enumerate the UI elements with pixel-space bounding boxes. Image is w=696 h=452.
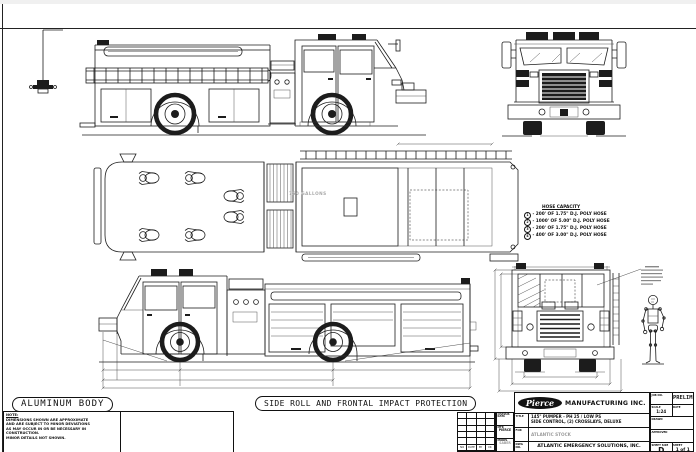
sheet-value: 1 of 1	[673, 447, 693, 452]
title-label: TITLE	[515, 414, 529, 427]
sheet-number-cell: SHEET 1 of 1	[673, 443, 694, 451]
rear-view-note-text	[641, 266, 665, 288]
model-value: SABER	[498, 442, 513, 446]
sheet-size-value: D	[652, 447, 672, 452]
note-box-empty-cell	[121, 412, 233, 452]
pierce-logo-text: Pierce	[526, 398, 554, 408]
rev-col-no: NO	[458, 445, 467, 451]
side-view-bottom-drawing	[95, 262, 485, 394]
chassis-data-header-cell: CHASSIS DATA	[497, 413, 513, 426]
drawing-title: 145" PUMPER - PH 25 / LOW PS SIDE CONTRO…	[529, 414, 623, 427]
dwg-value: ATLANTIC EMERGENCY SOLUTIONS, INC.	[529, 444, 649, 449]
title-block-main: Pierce MANUFACTURING INC. TITLE 145" PUM…	[514, 392, 650, 452]
hose-legend-text: - 400' OF 3.00" D.J. POLY HOSE	[533, 233, 607, 240]
manufacturer-name: MANUFACTURING INC.	[565, 400, 646, 407]
approved-row: APPROVED	[651, 430, 693, 443]
side-view-top-drawing	[78, 28, 430, 140]
scale-date-row: SCALE 1:24 DATE	[651, 405, 693, 417]
drawing-title-line2: SIDE CONTROL, (2) CROSSLAYS, DELUXE	[531, 420, 621, 425]
sheet-top-margin	[0, 0, 696, 4]
circled-number-2: 2	[524, 219, 531, 226]
aluminum-body-callout: ALUMINUM BODY	[12, 397, 113, 412]
drawn-row: DRAWN	[651, 417, 693, 430]
revision-table: NO DATE BY CK	[457, 412, 496, 452]
sheet-row: SHEET SIZE D SHEET 1 of 1	[651, 443, 693, 451]
note-text: NOTE: DIMENSIONS SHOWN ARE APPROXIMATE A…	[4, 412, 121, 452]
for-row: FOR ATLANTIC STOCK	[515, 428, 649, 442]
for-label: FOR	[515, 428, 529, 441]
drawn-label: DRAWN	[652, 418, 663, 429]
side-roll-protection-callout: SIDE ROLL AND FRONTAL IMPACT PROTECTION	[255, 396, 476, 411]
front-view-drawing	[500, 26, 628, 138]
circled-number-4: 4	[524, 233, 531, 240]
hose-legend-text: - 1000' OF 5.00" D.J. POLY HOSE	[533, 219, 610, 226]
title-block-right: JOB NO. PRELIM SCALE 1:24 DATE DRAWN APP…	[650, 392, 694, 452]
scale-value: 1:24	[652, 409, 672, 414]
job-value: PRELIM	[673, 393, 694, 404]
rear-view-drawing	[485, 255, 665, 395]
circled-number-1: 1	[524, 212, 531, 219]
note-box: NOTE: DIMENSIONS SHOWN ARE APPROXIMATE A…	[3, 411, 234, 452]
note-line: MINOR DETAILS NOT SHOWN.	[6, 436, 118, 441]
job-row: JOB NO. PRELIM	[651, 393, 693, 405]
dwg-label: DWG NO.	[515, 442, 529, 451]
hose-legend-text: - 200' OF 1.75" D.J. POLY HOSE	[533, 212, 607, 219]
rev-col-by: BY	[477, 445, 486, 451]
hose-legend-item: 1 - 200' OF 1.75" D.J. POLY HOSE	[524, 212, 610, 219]
circled-number-3: 3	[524, 226, 531, 233]
human-scale-figure	[640, 294, 666, 368]
title-block: NO DATE BY CK CHASSIS DATA MFR PIERCE MO…	[457, 392, 694, 452]
hose-legend-item: 4 - 400' OF 3.00" D.J. POLY HOSE	[524, 233, 610, 240]
mfr-value: PIERCE	[498, 429, 513, 433]
hose-legend-title: HOSE CAPACITY	[542, 205, 610, 212]
job-label-cell: JOB NO.	[651, 393, 673, 404]
hose-legend-text: - 200' OF 1.75" D.J. POLY HOSE	[533, 226, 607, 233]
hose-legend-item: 3 - 200' OF 1.75" D.J. POLY HOSE	[524, 226, 610, 233]
sheet-border-left	[2, 4, 3, 452]
chassis-mfr-cell: MFR PIERCE	[497, 426, 513, 439]
dwg-row: DWG NO. ATLANTIC EMERGENCY SOLUTIONS, IN…	[515, 442, 649, 451]
rev-col-date: DATE	[467, 445, 476, 451]
chassis-data-column: CHASSIS DATA MFR PIERCE MODEL SABER	[496, 412, 514, 452]
scale-cell: SCALE 1:24	[651, 405, 673, 416]
chassis-data-header: CHASSIS DATA	[498, 414, 513, 420]
date-label: DATE	[673, 406, 693, 409]
date-cell: DATE	[673, 405, 694, 416]
hose-legend: HOSE CAPACITY 1 - 200' OF 1.75" D.J. POL…	[524, 205, 610, 240]
rev-col-ck: CK	[486, 445, 495, 451]
sheet-size-cell: SHEET SIZE D	[651, 443, 673, 451]
front-detail-symbol-drawing	[25, 30, 63, 96]
drawing-title-row: TITLE 145" PUMPER - PH 25 / LOW PS SIDE …	[515, 414, 649, 428]
job-label: JOB NO.	[652, 394, 672, 397]
chassis-model-cell: MODEL SABER	[497, 439, 513, 451]
top-view-drawing	[92, 148, 532, 266]
water-tank-capacity-label: 750 GALLONS	[289, 191, 327, 196]
manufacturer-row: Pierce MANUFACTURING INC.	[515, 393, 649, 414]
pierce-logo: Pierce	[518, 397, 562, 409]
approved-label: APPROVED	[652, 431, 668, 442]
hose-legend-item: 2 - 1000' OF 5.00" D.J. POLY HOSE	[524, 219, 610, 226]
drawing-sheet: 750 GALLONS HOSE CAPACITY 1 - 200' OF 1.…	[0, 0, 696, 452]
for-value: ATLANTIC STOCK	[529, 430, 573, 439]
